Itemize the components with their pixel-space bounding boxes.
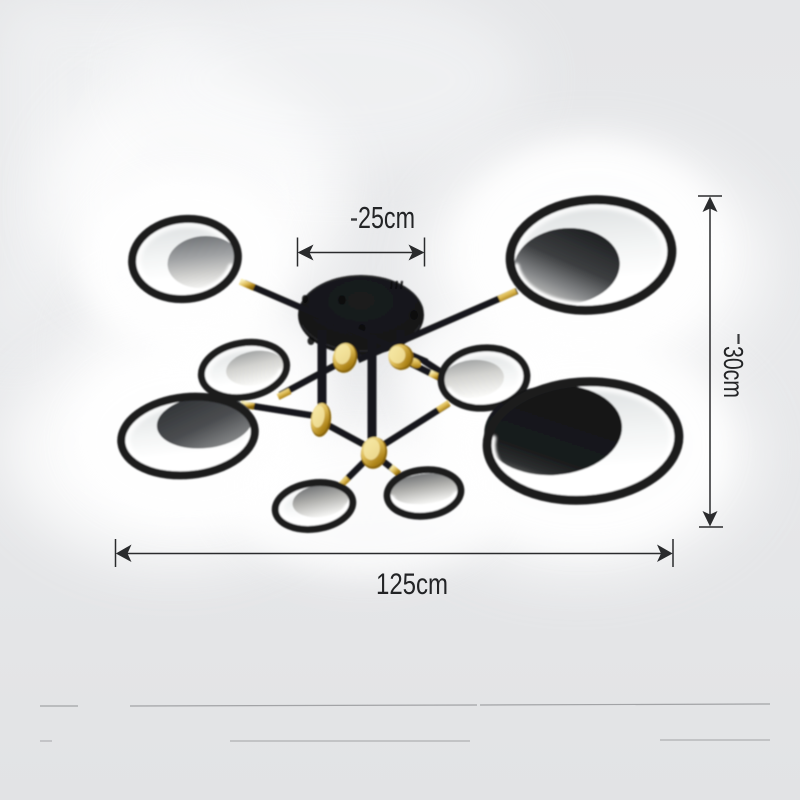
svg-text:125cm: 125cm — [376, 568, 448, 601]
svg-text:25cm: 25cm — [358, 200, 415, 235]
svg-text:30cm: 30cm — [718, 346, 749, 398]
